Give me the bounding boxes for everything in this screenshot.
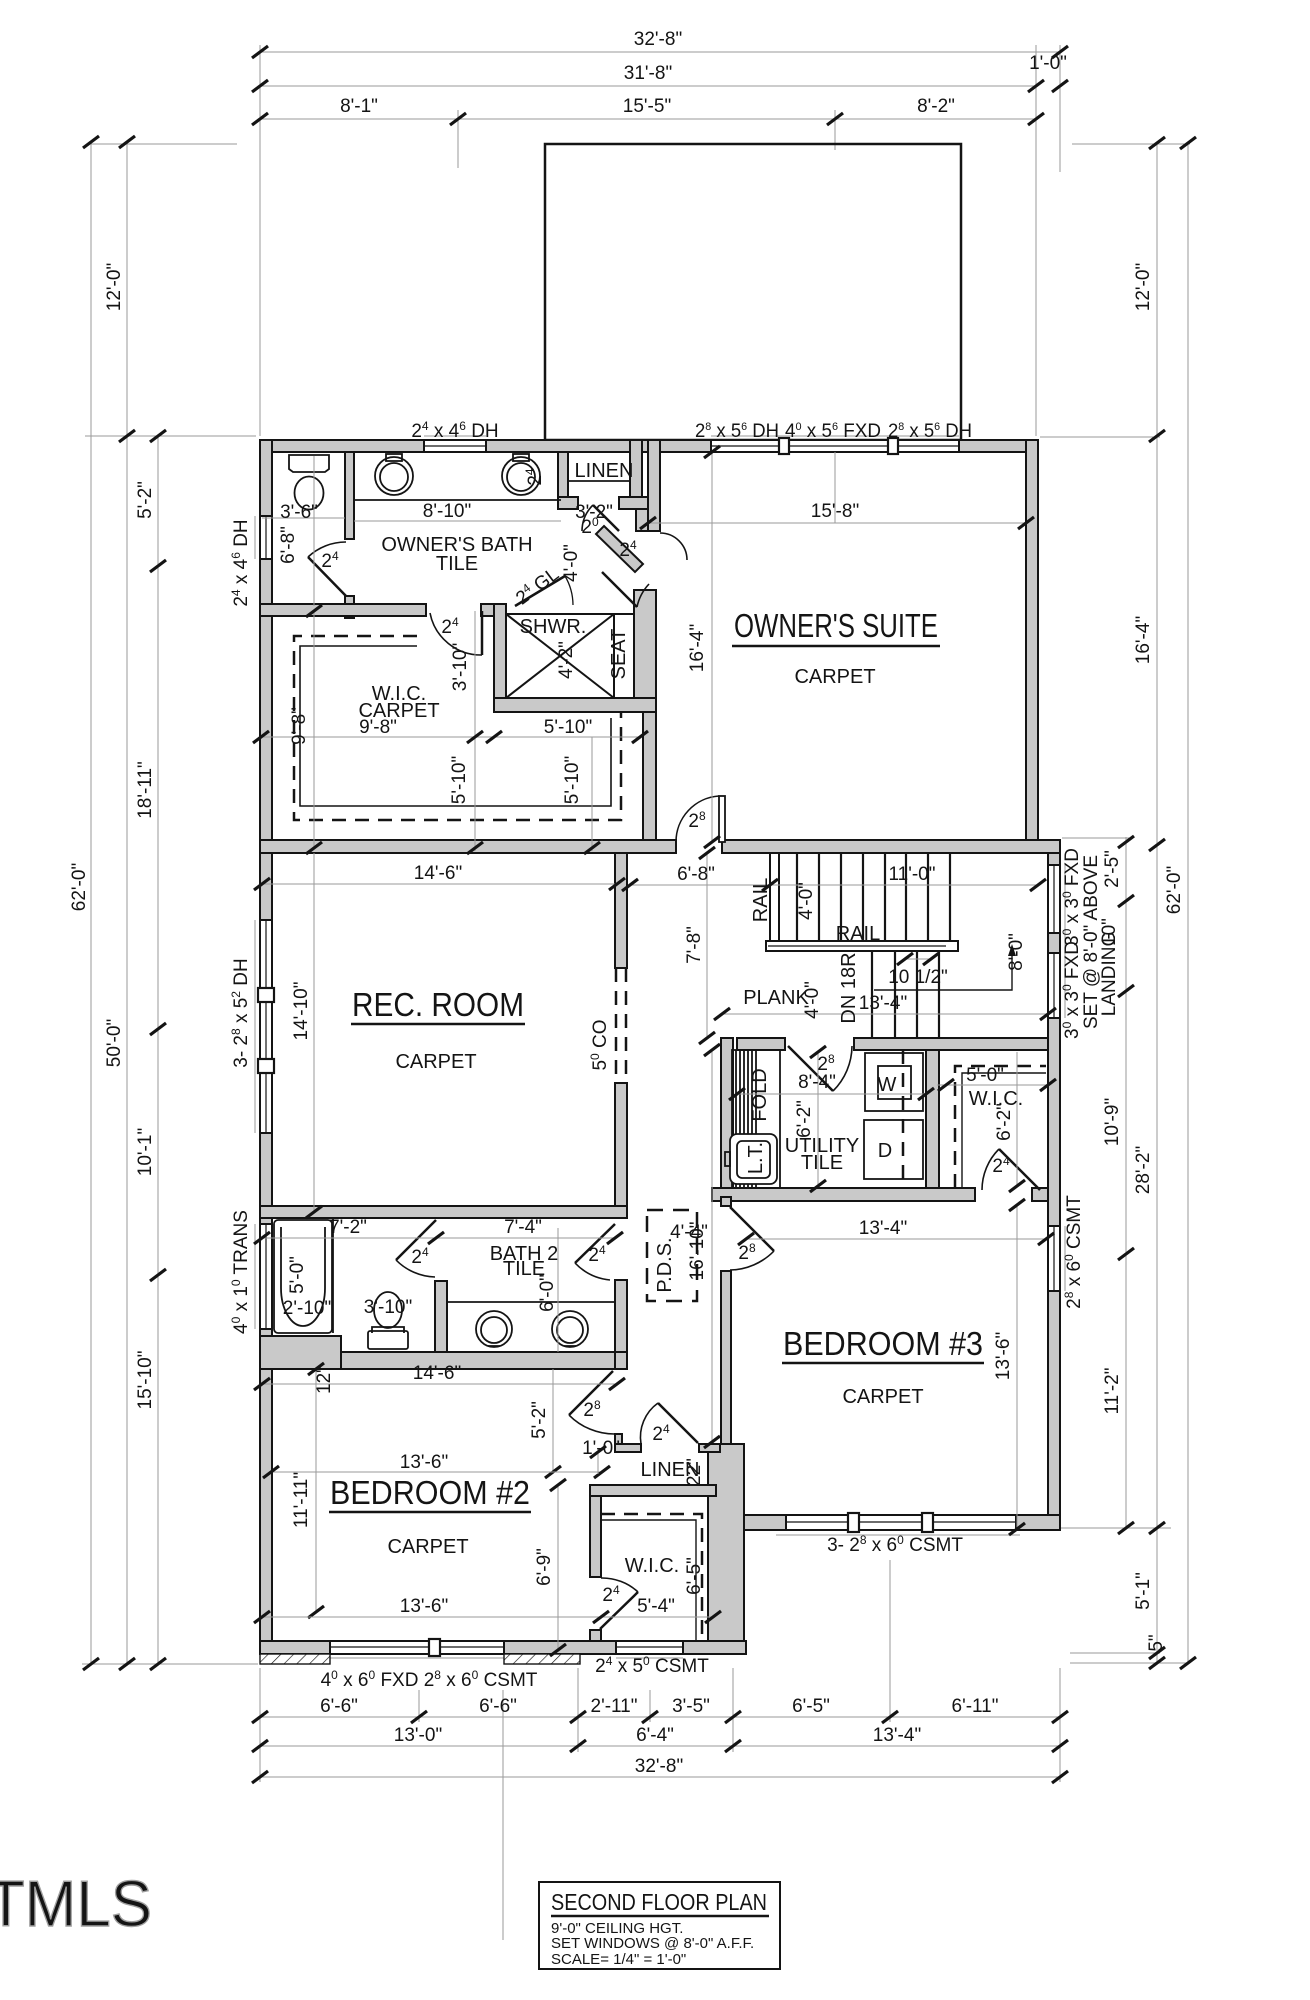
svg-text:50 CO: 50 CO [588, 1019, 611, 1070]
svg-text:3'-6": 3'-6" [280, 502, 318, 523]
svg-text:8'-10": 8'-10" [423, 501, 471, 522]
svg-text:32'-8": 32'-8" [634, 29, 682, 50]
svg-text:13'-6": 13'-6" [400, 1452, 448, 1473]
svg-text:9'-8": 9'-8" [289, 707, 310, 745]
svg-text:2'-10": 2'-10" [283, 1298, 331, 1319]
svg-text:3- 28 x 60 CSMT: 3- 28 x 60 CSMT [827, 1533, 963, 1556]
svg-text:6'-8": 6'-8" [278, 526, 299, 564]
svg-text:62'-0": 62'-0" [69, 863, 90, 911]
svg-text:24 x 50 CSMT: 24 x 50 CSMT [595, 1654, 709, 1677]
svg-text:8'-2": 8'-2" [917, 96, 955, 117]
svg-text:8'-0": 8'-0" [1006, 933, 1027, 971]
svg-text:6'-9": 6'-9" [534, 1548, 555, 1586]
svg-text:5": 5" [1146, 1634, 1167, 1651]
svg-text:13'-0": 13'-0" [394, 1725, 442, 1746]
svg-text:5'-0": 5'-0" [966, 1065, 1004, 1086]
svg-text:16'-4": 16'-4" [687, 624, 708, 672]
svg-text:SHWR.: SHWR. [520, 616, 587, 638]
svg-text:15'-10": 15'-10" [135, 1351, 156, 1410]
svg-text:5'-10": 5'-10" [544, 717, 592, 738]
svg-text:28 x 60 CSMT: 28 x 60 CSMT [1062, 1195, 1085, 1309]
svg-text:62'-0": 62'-0" [1164, 866, 1185, 914]
svg-text:12'-0": 12'-0" [1133, 263, 1154, 311]
svg-text:14'-6": 14'-6" [414, 863, 462, 884]
svg-text:5'-2": 5'-2" [529, 1401, 550, 1439]
svg-text:TMLS: TMLS [0, 1867, 152, 1940]
svg-text:14'-6": 14'-6" [413, 1363, 461, 1384]
svg-text:4'-0": 4'-0" [796, 882, 817, 920]
svg-text:6'-2": 6'-2" [994, 1103, 1015, 1141]
svg-text:SECOND FLOOR PLAN: SECOND FLOOR PLAN [551, 1889, 767, 1915]
svg-text:6'-8": 6'-8" [677, 864, 715, 885]
svg-text:CARPET: CARPET [842, 1386, 923, 1408]
svg-text:16'-4": 16'-4" [1133, 616, 1154, 664]
svg-text:13'-6": 13'-6" [993, 1332, 1014, 1380]
svg-text:13'-4": 13'-4" [859, 1218, 907, 1239]
svg-text:SCALE= 1/4" = 1'-0": SCALE= 1/4" = 1'-0" [551, 1951, 686, 1968]
svg-text:15'-5": 15'-5" [623, 96, 671, 117]
svg-text:6'-2": 6'-2" [794, 1100, 815, 1138]
svg-text:31'-8": 31'-8" [624, 63, 672, 84]
svg-text:8'-4": 8'-4" [798, 1072, 836, 1093]
svg-text:5'-1": 5'-1" [1133, 1572, 1154, 1610]
svg-text:10 1/2": 10 1/2" [888, 967, 948, 988]
svg-text:OWNER'S SUITE: OWNER'S SUITE [734, 607, 938, 644]
svg-text:5'-0": 5'-0" [287, 1256, 308, 1294]
svg-text:BEDROOM #2: BEDROOM #2 [330, 1474, 530, 1511]
svg-text:CARPET: CARPET [794, 666, 875, 688]
svg-text:7'-4": 7'-4" [504, 1217, 542, 1238]
svg-text:6'-0": 6'-0" [537, 1274, 558, 1312]
svg-text:11'-0": 11'-0" [889, 864, 936, 885]
svg-text:6'-4": 6'-4" [636, 1725, 674, 1746]
svg-text:3'-10": 3'-10" [364, 1297, 412, 1318]
svg-text:1'-0": 1'-0" [1029, 53, 1067, 74]
svg-text:4'-0": 4'-0" [802, 981, 823, 1019]
svg-text:3'-10": 3'-10" [450, 643, 471, 691]
svg-text:SEAT: SEAT [608, 629, 630, 680]
svg-text:2'-11": 2'-11" [591, 1696, 638, 1717]
svg-text:2'-5": 2'-5" [1102, 850, 1123, 888]
svg-text:5'-4": 5'-4" [637, 1596, 675, 1617]
svg-text:10'-9": 10'-9" [1102, 1098, 1123, 1146]
svg-text:12": 12" [314, 1366, 335, 1394]
svg-text:RAIL: RAIL [836, 923, 880, 945]
svg-text:12'-0": 12'-0" [104, 263, 125, 311]
svg-text:6'-5": 6'-5" [792, 1696, 830, 1717]
svg-text:8'-1": 8'-1" [340, 96, 378, 117]
svg-text:14'-10": 14'-10" [291, 982, 312, 1041]
svg-text:9'-8": 9'-8" [359, 717, 397, 738]
svg-text:10'-1": 10'-1" [135, 1128, 156, 1176]
svg-text:CARPET: CARPET [395, 1051, 476, 1073]
svg-text:11'-11": 11'-11" [291, 1472, 312, 1528]
svg-text:7'-8": 7'-8" [684, 926, 705, 964]
svg-text:6'-6": 6'-6" [479, 1696, 517, 1717]
svg-text:7'-2": 7'-2" [329, 1217, 367, 1238]
svg-text:W: W [878, 1074, 897, 1096]
svg-text:13'-4": 13'-4" [873, 1725, 921, 1746]
svg-text:CARPET: CARPET [387, 1536, 468, 1558]
svg-text:DN 18R: DN 18R [838, 952, 860, 1023]
svg-text:4'-2": 4'-2" [556, 641, 577, 679]
svg-text:SET WINDOWS @ 8'-0" A.F.F.: SET WINDOWS @ 8'-0" A.F.F. [551, 1935, 754, 1952]
svg-text:5'-10": 5'-10" [449, 756, 470, 804]
svg-text:13'-4": 13'-4" [859, 993, 907, 1014]
svg-text:13'-6": 13'-6" [400, 1596, 448, 1617]
svg-text:6'-5": 6'-5" [684, 1557, 705, 1595]
svg-text:5'-2": 5'-2" [135, 481, 156, 519]
svg-text:TILE: TILE [801, 1152, 843, 1174]
svg-text:40 x 10 TRANS: 40 x 10 TRANS [229, 1210, 252, 1334]
svg-text:28'-2": 28'-2" [1133, 1146, 1154, 1194]
svg-text:50'-0": 50'-0" [104, 1019, 125, 1067]
svg-text:BEDROOM #3: BEDROOM #3 [783, 1325, 983, 1362]
svg-text:22": 22" [684, 1458, 705, 1486]
svg-text:1'-0": 1'-0" [582, 1438, 620, 1459]
svg-text:P.D.S.: P.D.S. [654, 1237, 676, 1292]
svg-text:10": 10" [1099, 918, 1120, 946]
svg-text:3'-5": 3'-5" [672, 1696, 710, 1717]
svg-text:RAIL: RAIL [750, 878, 772, 922]
svg-text:PLANK: PLANK [743, 987, 809, 1009]
svg-text:4'-0": 4'-0" [561, 544, 582, 582]
svg-text:6'-6": 6'-6" [320, 1696, 358, 1717]
svg-text:15'-8": 15'-8" [811, 501, 859, 522]
svg-text:32'-8": 32'-8" [635, 1756, 683, 1777]
svg-text:16'-10": 16'-10" [687, 1222, 708, 1281]
svg-text:FOLD: FOLD [749, 1068, 771, 1121]
svg-text:3- 28 x 52 DH: 3- 28 x 52 DH [229, 958, 252, 1067]
svg-text:11'-2": 11'-2" [1102, 1368, 1123, 1415]
svg-text:5'-10": 5'-10" [562, 756, 583, 804]
svg-text:D: D [878, 1140, 892, 1162]
svg-text:W.I.C.: W.I.C. [625, 1555, 679, 1577]
svg-text:L.T.: L.T. [745, 1142, 767, 1174]
svg-text:40 x 60 FXD 28 x 60 CSMT: 40 x 60 FXD 28 x 60 CSMT [321, 1668, 538, 1691]
svg-text:6'-11": 6'-11" [952, 1696, 999, 1717]
svg-text:REC. ROOM: REC. ROOM [352, 986, 524, 1023]
svg-text:TILE: TILE [436, 553, 478, 575]
svg-text:LINEN: LINEN [575, 460, 634, 482]
svg-text:18'-11": 18'-11" [135, 761, 156, 819]
